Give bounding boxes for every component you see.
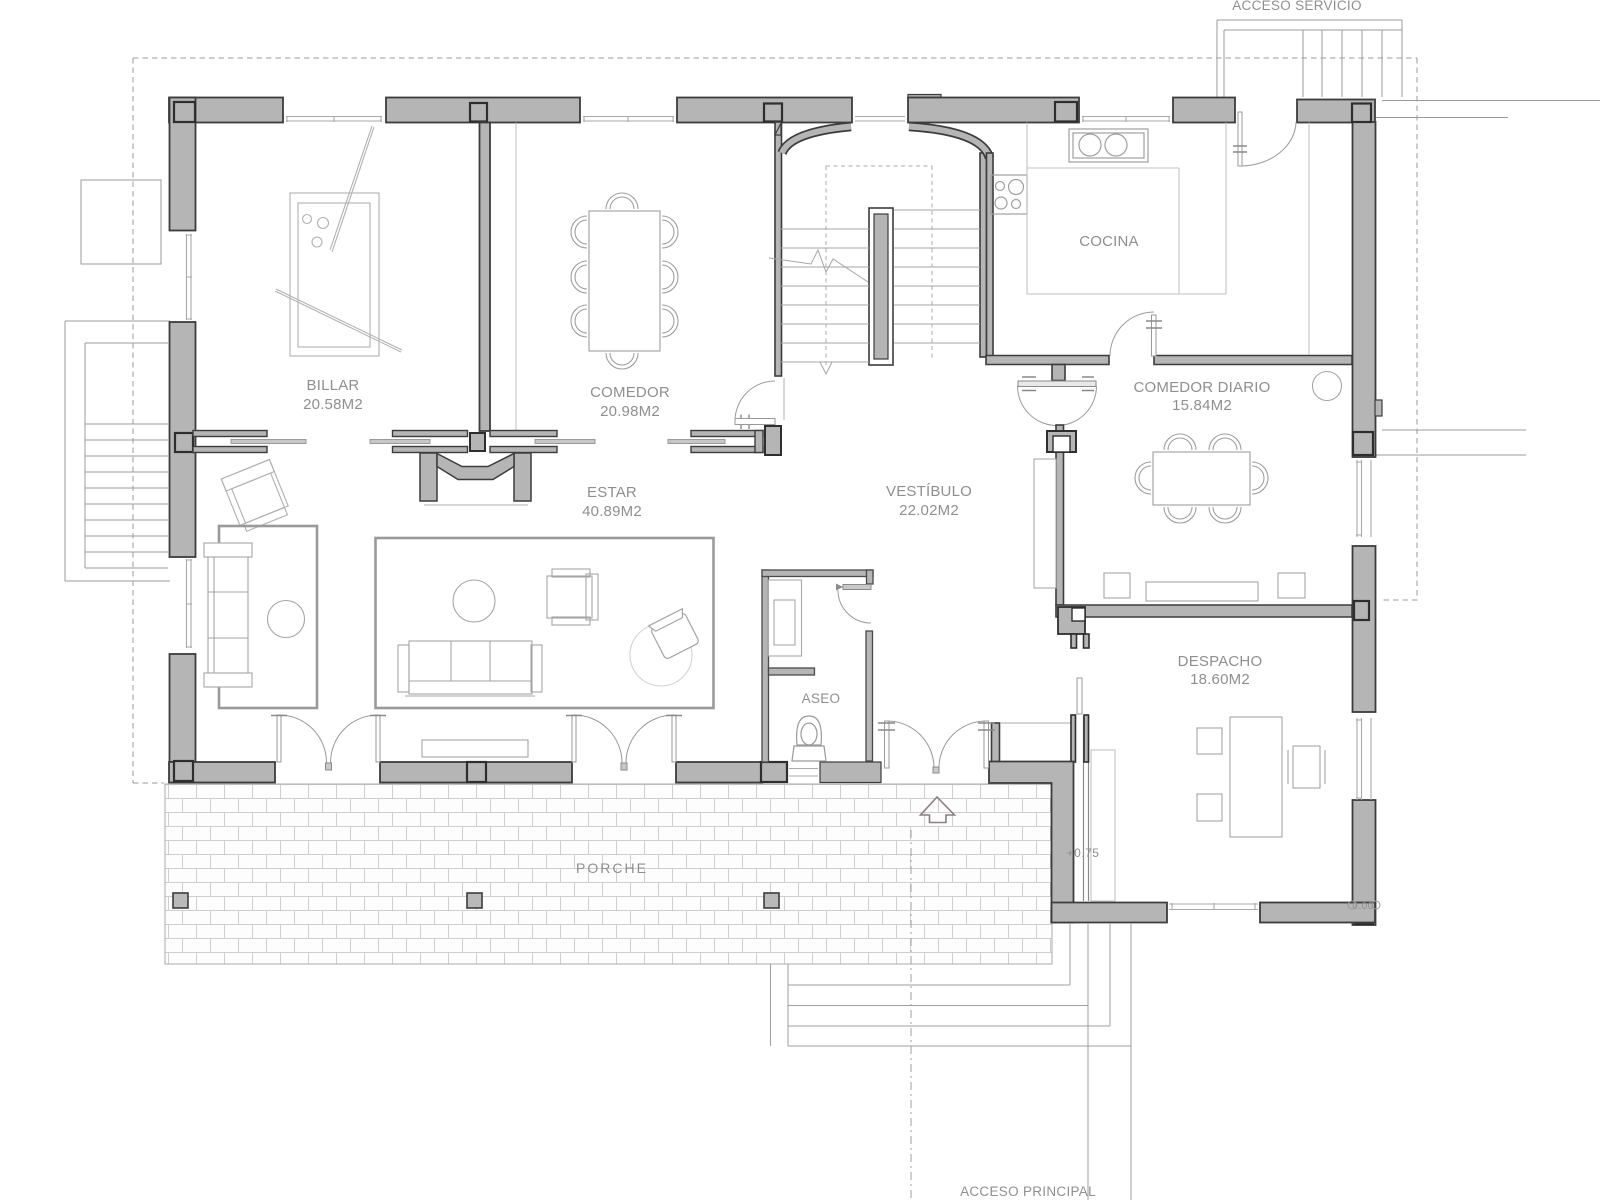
svg-text:ACCESO PRINCIPAL: ACCESO PRINCIPAL: [960, 1184, 1096, 1199]
svg-text:+0.75: +0.75: [1067, 846, 1100, 860]
svg-text:22.02M2: 22.02M2: [899, 502, 959, 519]
svg-text:COMEDOR DIARIO: COMEDOR DIARIO: [1134, 379, 1271, 396]
svg-text:PORCHE: PORCHE: [576, 860, 648, 876]
svg-text:20.98M2: 20.98M2: [600, 403, 660, 420]
svg-text:0.00: 0.00: [1352, 901, 1373, 912]
svg-text:20.58M2: 20.58M2: [303, 396, 363, 413]
svg-text:BILLAR: BILLAR: [307, 377, 360, 394]
svg-text:COCINA: COCINA: [1079, 233, 1139, 250]
svg-text:DESPACHO: DESPACHO: [1178, 653, 1263, 670]
svg-text:ESTAR: ESTAR: [587, 484, 637, 501]
svg-text:ACCESO SERVICIO: ACCESO SERVICIO: [1232, 0, 1362, 13]
svg-text:ASEO: ASEO: [802, 691, 841, 706]
svg-text:15.84M2: 15.84M2: [1172, 397, 1232, 414]
svg-text:18.60M2: 18.60M2: [1190, 671, 1250, 688]
svg-text:40.89M2: 40.89M2: [582, 503, 642, 520]
svg-text:COMEDOR: COMEDOR: [590, 384, 670, 401]
svg-text:VESTÍBULO: VESTÍBULO: [886, 483, 972, 500]
